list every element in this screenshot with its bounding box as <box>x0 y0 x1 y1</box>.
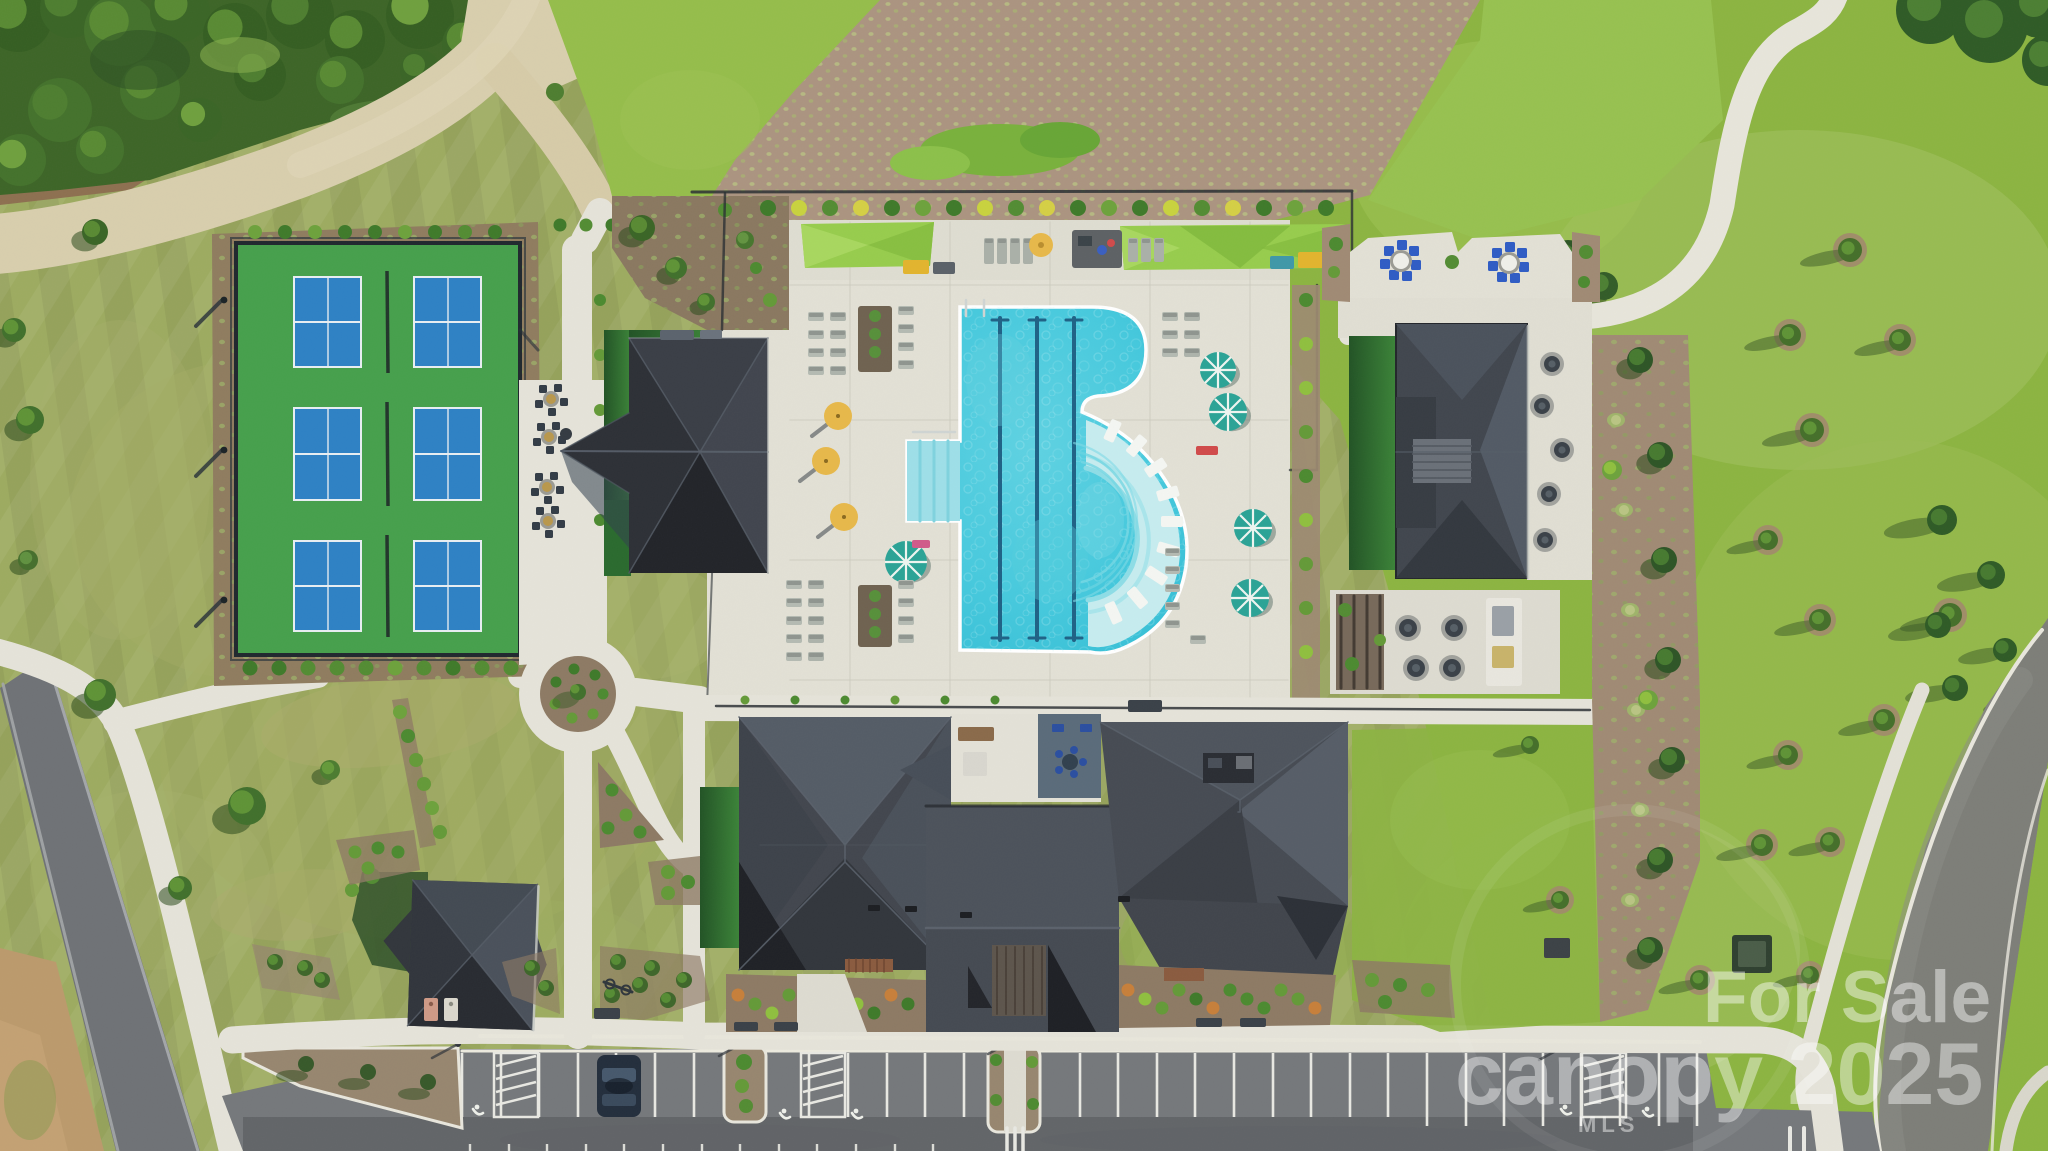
svg-text:canopy 2025: canopy 2025 <box>1455 1024 1983 1123</box>
svg-text:MLS: MLS <box>1578 1112 1639 1137</box>
